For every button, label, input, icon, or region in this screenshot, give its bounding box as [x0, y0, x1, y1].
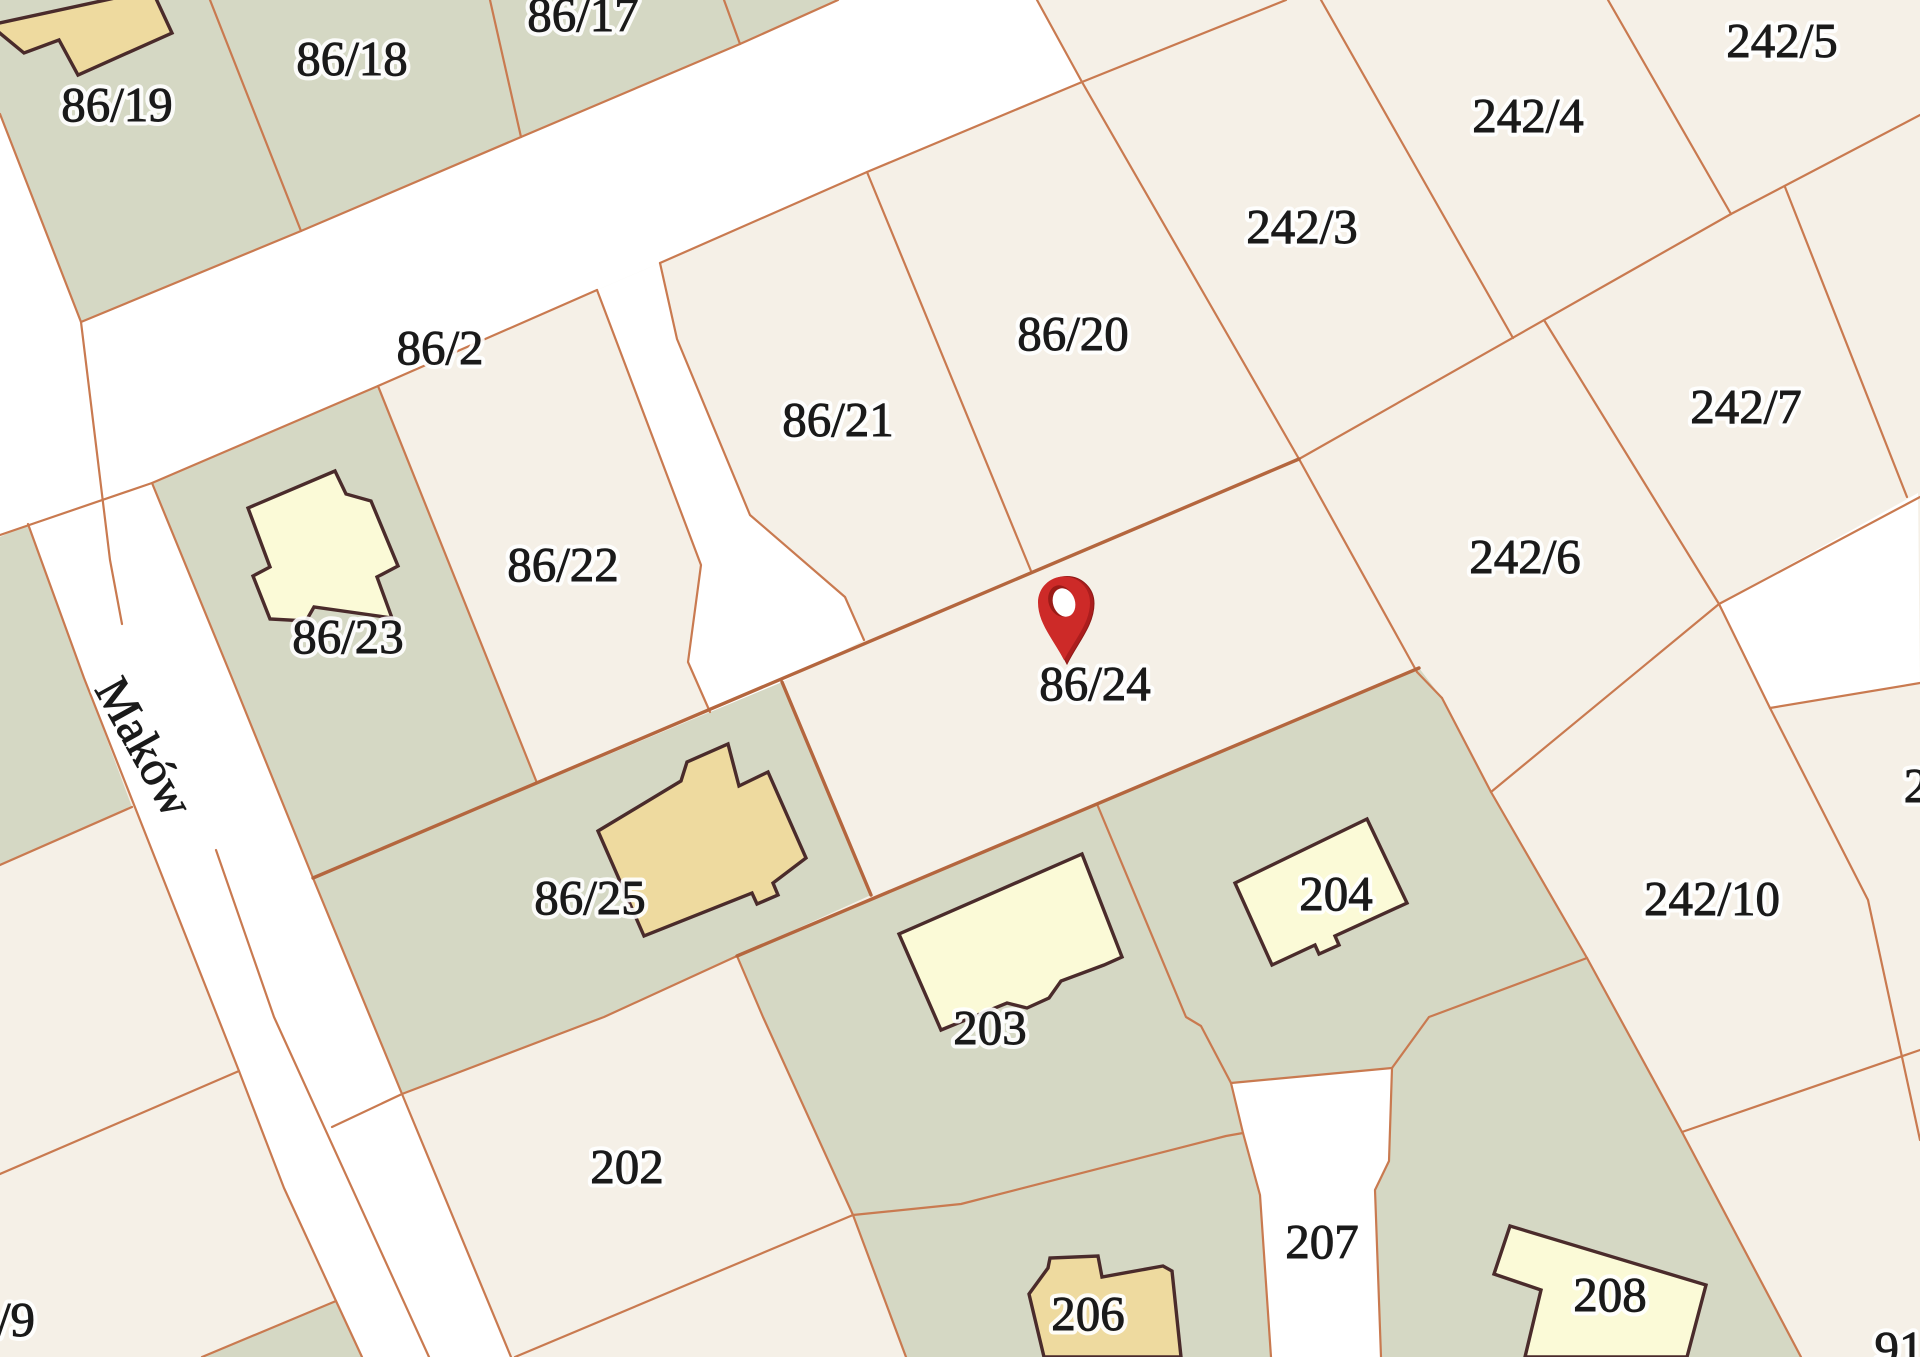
svg-text:202: 202: [590, 1139, 664, 1194]
svg-text:86/2: 86/2: [396, 320, 483, 375]
svg-text:208: 208: [1573, 1267, 1647, 1322]
svg-text:86/25: 86/25: [534, 870, 646, 925]
svg-text:203: 203: [953, 1000, 1027, 1055]
svg-text:86/19: 86/19: [61, 77, 173, 132]
svg-text:86/17: 86/17: [527, 0, 639, 42]
svg-text:206: 206: [1051, 1286, 1125, 1341]
svg-text:86/18: 86/18: [296, 31, 408, 86]
svg-text:/9: /9: [0, 1292, 35, 1347]
svg-text:2: 2: [1904, 758, 1920, 813]
svg-text:204: 204: [1299, 866, 1373, 921]
svg-text:242/5: 242/5: [1726, 13, 1838, 68]
svg-text:207: 207: [1285, 1214, 1359, 1269]
svg-text:242/4: 242/4: [1472, 88, 1584, 143]
svg-text:242/3: 242/3: [1246, 199, 1358, 254]
svg-text:86/20: 86/20: [1017, 306, 1129, 361]
svg-text:242/10: 242/10: [1644, 871, 1780, 926]
svg-text:86/22: 86/22: [507, 537, 619, 592]
svg-text:91: 91: [1875, 1321, 1920, 1357]
svg-text:86/24: 86/24: [1039, 656, 1151, 711]
svg-text:242/6: 242/6: [1469, 529, 1581, 584]
svg-text:242/7: 242/7: [1690, 379, 1802, 434]
svg-text:86/21: 86/21: [782, 392, 894, 447]
svg-text:86/23: 86/23: [292, 609, 404, 664]
